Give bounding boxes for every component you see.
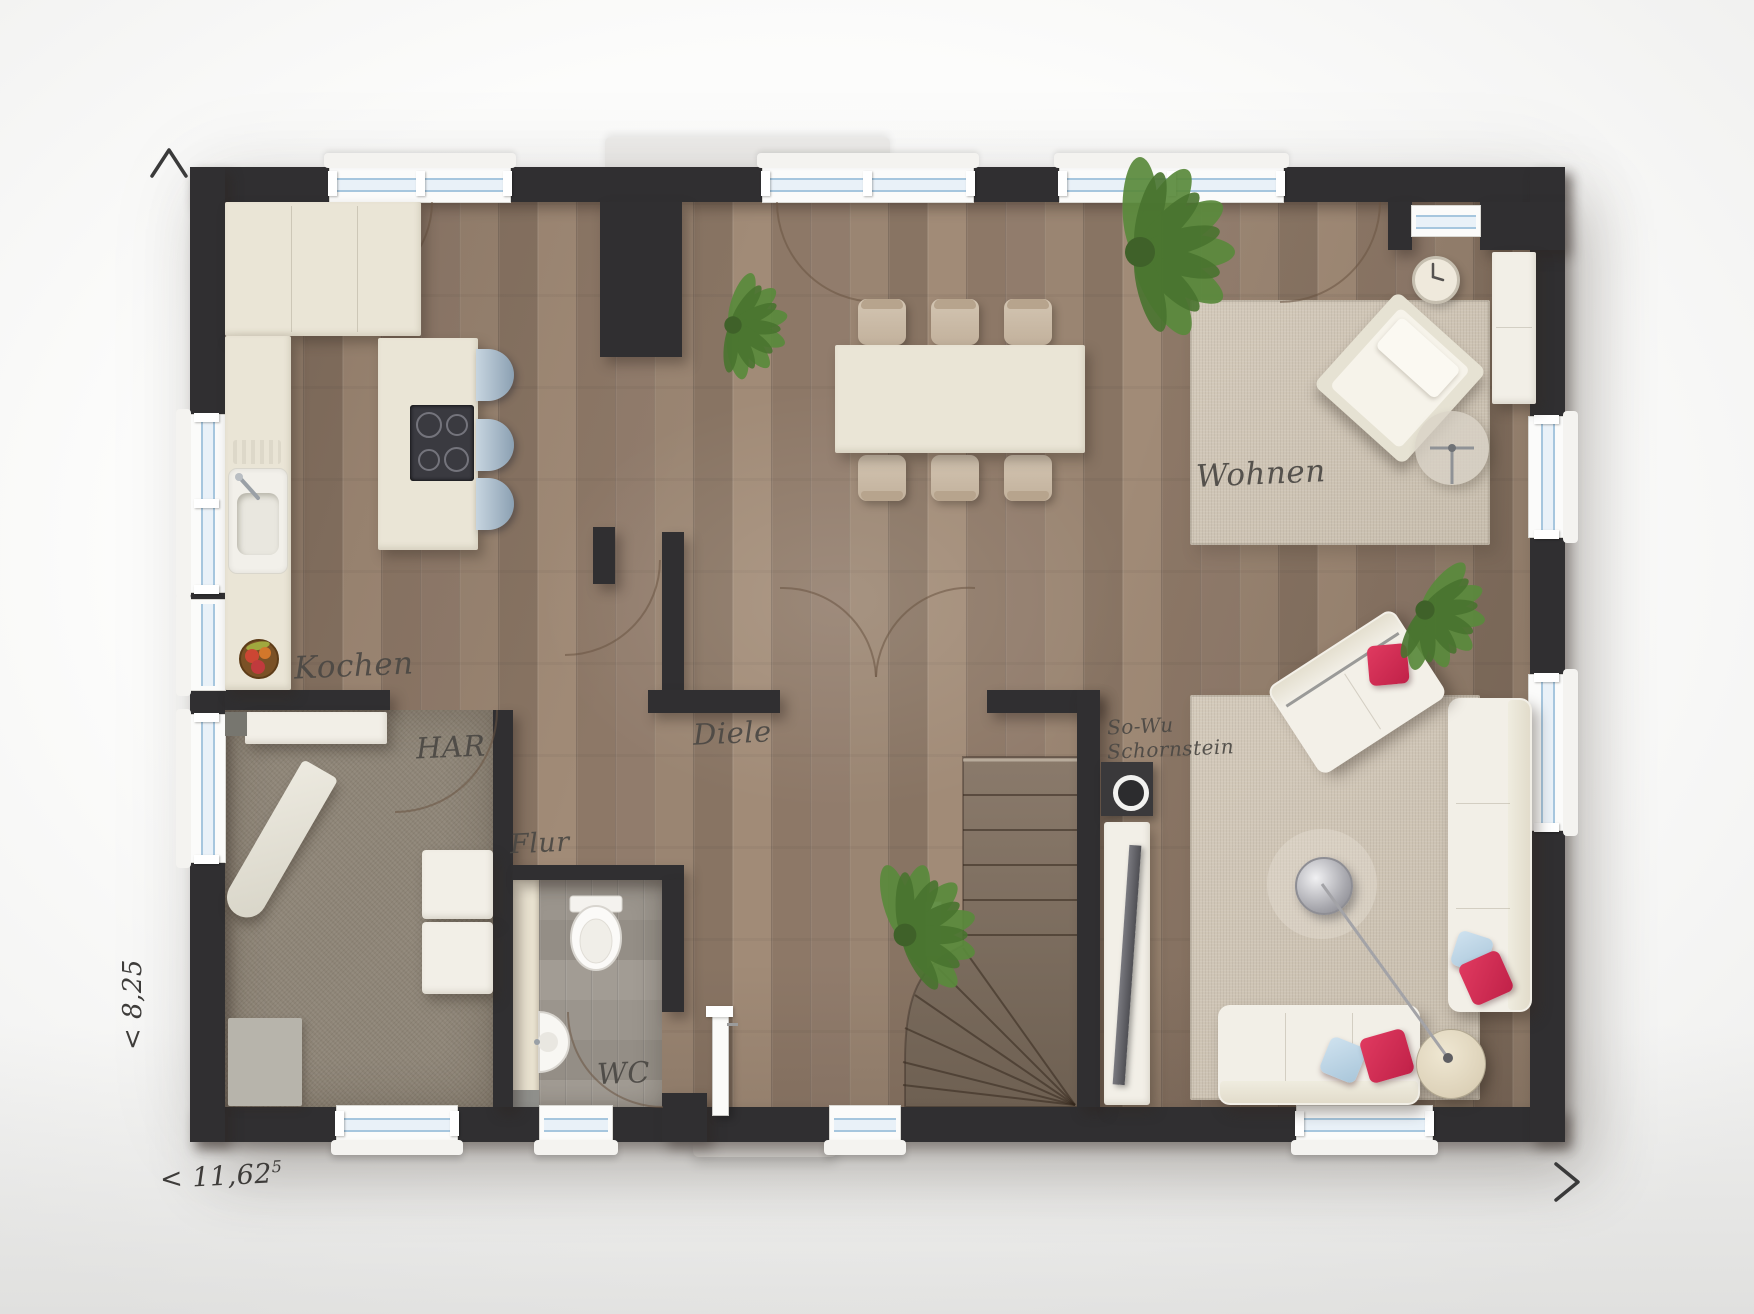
window-cap bbox=[1058, 171, 1067, 196]
north-arrow-icon bbox=[152, 150, 186, 176]
wall-har-east bbox=[493, 710, 513, 1107]
window-cap bbox=[335, 1111, 344, 1136]
sofa-right bbox=[1448, 698, 1532, 1012]
kitchen-drainer bbox=[233, 440, 281, 464]
window-kitchen-left-2 bbox=[189, 600, 225, 690]
wall-wc-north bbox=[513, 865, 684, 880]
window-glass bbox=[1301, 1118, 1428, 1132]
window-glass bbox=[544, 1118, 608, 1132]
dimension-depth-text: < 8,25 bbox=[118, 959, 148, 1050]
window-cap bbox=[194, 713, 219, 722]
entrance-step bbox=[693, 1142, 837, 1157]
wall-kitchen-dining bbox=[600, 202, 682, 357]
window-cap bbox=[1534, 823, 1559, 832]
wall-corner-notch bbox=[1480, 202, 1565, 250]
wall-kitchen-har bbox=[225, 690, 390, 710]
har-corner-box bbox=[225, 712, 247, 736]
window-living-top bbox=[1060, 166, 1283, 202]
window-cap bbox=[1534, 530, 1559, 539]
wall-diele-north bbox=[648, 690, 780, 713]
har-shelf bbox=[245, 712, 387, 744]
side-table bbox=[1415, 411, 1489, 485]
window-glass bbox=[1541, 679, 1555, 826]
label-wohnen: Wohnen bbox=[1195, 453, 1326, 495]
window-cap bbox=[503, 171, 512, 196]
chimney-flue-icon bbox=[1113, 775, 1149, 811]
burner-icon bbox=[416, 412, 442, 438]
label-diele: Diele bbox=[692, 714, 772, 751]
window-glass bbox=[1541, 421, 1555, 533]
dining-chair bbox=[1004, 455, 1052, 501]
cooktop bbox=[410, 405, 474, 481]
sink-basin bbox=[237, 493, 279, 555]
window-cap bbox=[416, 171, 425, 196]
window-cap bbox=[1534, 415, 1559, 424]
entrance-door-head bbox=[706, 1006, 733, 1017]
wall-stair-east bbox=[1077, 690, 1100, 1107]
window-har-left bbox=[189, 715, 225, 862]
dimension-width: < 11,625 bbox=[159, 1157, 283, 1195]
label-wc: WC bbox=[596, 1055, 650, 1091]
window-notch bbox=[1412, 206, 1480, 236]
window-cap bbox=[1425, 1111, 1434, 1136]
dining-chair bbox=[931, 299, 979, 345]
label-kochen: Kochen bbox=[293, 645, 414, 686]
window-glass bbox=[201, 719, 215, 858]
window-glass bbox=[834, 1118, 896, 1132]
window-glass bbox=[1416, 215, 1476, 229]
sofa-seam bbox=[1285, 1013, 1286, 1081]
window-cap bbox=[863, 171, 872, 196]
dimension-width-text: < 11,62 bbox=[159, 1158, 272, 1195]
window-living-bottom bbox=[1297, 1106, 1432, 1142]
floor-mat bbox=[228, 1018, 302, 1106]
window-cap bbox=[194, 413, 219, 422]
counter-seam bbox=[357, 206, 358, 332]
dining-chair bbox=[931, 455, 979, 501]
window-cap bbox=[194, 499, 219, 508]
window-kitchen-left bbox=[189, 415, 225, 592]
window-living-right-2 bbox=[1529, 675, 1565, 830]
pillow-red bbox=[1359, 1028, 1416, 1085]
sofa-backrest bbox=[1508, 700, 1530, 1010]
sofa-backrest bbox=[1220, 1081, 1418, 1103]
east-arrow-icon bbox=[1556, 1164, 1578, 1200]
dining-table bbox=[835, 345, 1085, 453]
sideboard bbox=[1492, 252, 1536, 404]
window-har-bottom bbox=[337, 1106, 457, 1142]
sofa-seam bbox=[1456, 908, 1510, 909]
dimension-width-sup: 5 bbox=[271, 1157, 283, 1177]
floorplan-canvas: Kochen HAR Flur Diele WC Wohnen So-Wu Sc… bbox=[0, 0, 1754, 1314]
kitchen-counter-top bbox=[225, 202, 421, 336]
sideboard-seam bbox=[1496, 327, 1532, 328]
window-cap bbox=[1295, 1111, 1304, 1136]
label-schornstein-1: So-Wu bbox=[1107, 713, 1175, 740]
window-cap bbox=[194, 585, 219, 594]
dining-chair bbox=[858, 455, 906, 501]
wall-clock bbox=[1412, 256, 1460, 304]
kitchen-sink bbox=[228, 468, 288, 574]
terrace-door-top bbox=[763, 166, 973, 202]
window-kitchen-top bbox=[330, 166, 510, 202]
washing-machine bbox=[422, 850, 493, 919]
burner-icon bbox=[446, 414, 468, 436]
label-flur: Flur bbox=[509, 827, 570, 861]
wc-tile-strip bbox=[513, 880, 539, 1107]
wall-wc-jamb bbox=[662, 1093, 707, 1142]
wall-stub-diele-a bbox=[593, 527, 615, 584]
counter-seam bbox=[291, 206, 292, 332]
dining-chair bbox=[1004, 299, 1052, 345]
window-living-right-1 bbox=[1529, 417, 1565, 537]
sofa-bottom bbox=[1218, 1005, 1420, 1105]
sofa-seam bbox=[1456, 803, 1510, 804]
window-cap bbox=[328, 171, 337, 196]
window-entry-side bbox=[830, 1106, 900, 1142]
burner-icon bbox=[444, 447, 469, 472]
entrance-door-handle bbox=[727, 1023, 738, 1026]
window-cap bbox=[450, 1111, 459, 1136]
window-cap bbox=[966, 171, 975, 196]
window-cap bbox=[761, 171, 770, 196]
pillow-red bbox=[1366, 643, 1409, 686]
burner-icon bbox=[418, 449, 440, 471]
dryer bbox=[422, 922, 493, 994]
wall-stub-top-right bbox=[1388, 202, 1412, 250]
chimney bbox=[1101, 762, 1153, 816]
window-wc-bottom bbox=[540, 1106, 612, 1142]
window-glass bbox=[341, 1118, 453, 1132]
wall-wc-east bbox=[662, 880, 684, 1012]
dining-chair bbox=[858, 299, 906, 345]
dimension-depth: < 8,25 bbox=[118, 959, 148, 1050]
entrance-door bbox=[712, 1016, 729, 1116]
floor-lamp-shade bbox=[1295, 857, 1353, 915]
window-cap bbox=[1276, 171, 1285, 196]
window-cap bbox=[1534, 673, 1559, 682]
window-cap bbox=[194, 855, 219, 864]
window-glass bbox=[201, 604, 215, 686]
window-cap bbox=[1167, 171, 1176, 196]
coffee-table bbox=[1416, 1029, 1486, 1099]
wall-stub-diele-b bbox=[662, 532, 684, 692]
label-har: HAR bbox=[415, 728, 486, 765]
